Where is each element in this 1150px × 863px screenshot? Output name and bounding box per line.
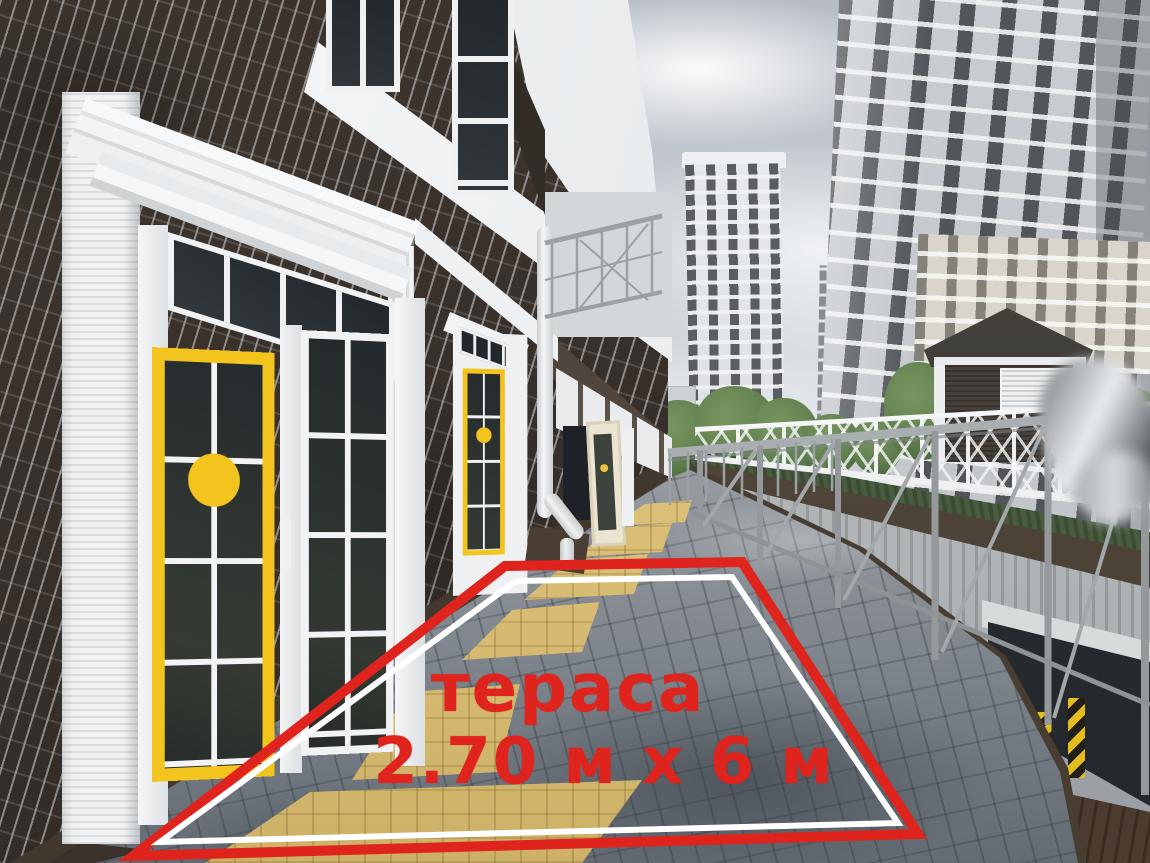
upper-window	[452, 0, 514, 196]
terrace-label: тераса	[431, 655, 705, 722]
hazard-striped-post	[1068, 698, 1085, 778]
door-glass	[593, 434, 616, 531]
downspout-outlet	[560, 538, 574, 570]
yellow-entrance-door-2	[450, 312, 536, 598]
downspout-pipe	[537, 226, 553, 518]
yellow-circle-decal	[476, 427, 491, 443]
door-jamb	[395, 298, 425, 766]
door-jamb	[622, 428, 634, 526]
yellow-entrance-door	[152, 347, 275, 782]
corner-pilaster	[62, 92, 140, 844]
photo-real-estate-terrace: тераса 2.70 м х 6 м	[0, 0, 1150, 863]
balcony-back-wall	[545, 192, 672, 337]
sidelight-window	[301, 330, 394, 756]
yellow-circle-decal	[188, 453, 240, 507]
terrace-dimensions-label: 2.70 м х 6 м	[373, 730, 834, 794]
door-handle	[282, 514, 291, 570]
yellow-door-leaf	[463, 368, 505, 555]
open-door-leaf	[586, 420, 626, 547]
upper-window	[326, 0, 400, 92]
